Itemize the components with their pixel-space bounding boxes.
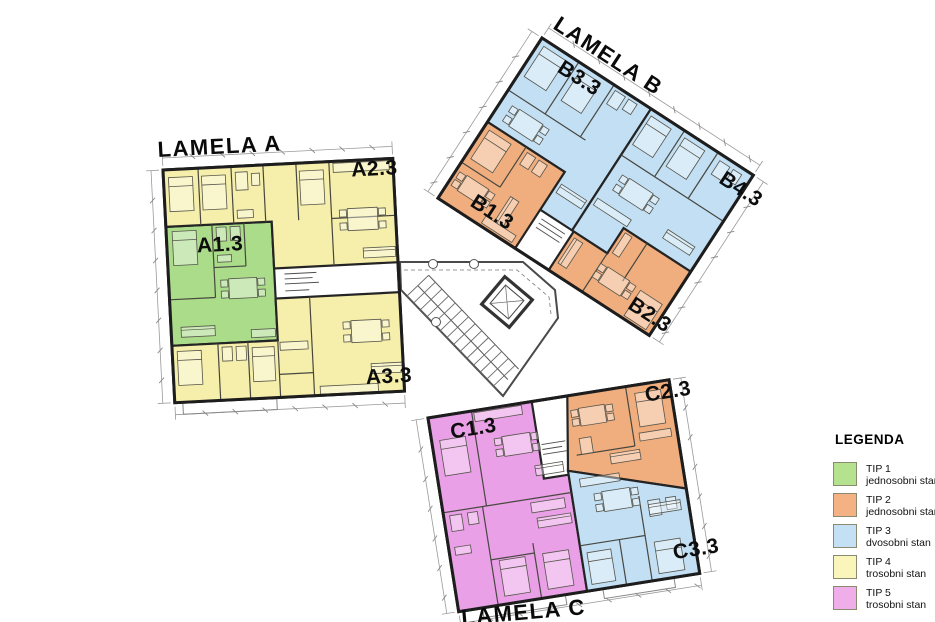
furniture <box>383 333 390 340</box>
unit-label-a2-3: A2.3 <box>351 156 398 181</box>
furniture <box>631 487 639 495</box>
furniture <box>543 550 574 590</box>
unit-label-a3-3: A3.3 <box>365 364 412 389</box>
furniture <box>587 549 616 584</box>
building-lamela-a: A1.3A2.3A3.3 <box>163 156 413 414</box>
furniture <box>602 487 633 511</box>
furniture <box>201 175 227 210</box>
legend-item-tip5: TIP 5 trosobni stan <box>833 586 933 610</box>
core-outline <box>400 262 558 396</box>
furniture <box>280 341 308 350</box>
furniture <box>594 493 602 501</box>
tip5-color-swatch <box>834 587 857 610</box>
legend-item-label: jednosobni stan <box>866 506 935 518</box>
furniture <box>531 432 539 440</box>
furniture <box>596 504 604 512</box>
furniture <box>229 277 258 298</box>
legend: LEGENDA TIP 1 jednosobni stan TIP 2 jedn… <box>833 432 933 617</box>
legend-item-label: trosobni stan <box>866 599 926 611</box>
furniture <box>347 207 378 231</box>
floor-plan-canvas: A1.3A2.3A3.3LAMELA AB3.3B4.3B1.3B2.3LAME… <box>0 0 935 622</box>
furniture <box>532 443 540 451</box>
legend-item-label: jednosobni stan <box>866 475 935 487</box>
furniture <box>340 223 347 230</box>
furniture <box>339 210 346 217</box>
furniture <box>578 404 607 426</box>
unit-label-a1-3: A1.3 <box>196 232 243 257</box>
building-title-lamela-a: LAMELA A <box>157 131 282 162</box>
legend-item-text: TIP 5 trosobni stan <box>866 586 926 611</box>
furniture <box>605 404 613 412</box>
furniture <box>579 437 593 455</box>
furniture <box>222 347 233 362</box>
furniture <box>363 246 396 258</box>
furniture <box>499 557 530 597</box>
unit-label-c2-3: C2.3 <box>643 377 692 407</box>
furniture <box>258 289 265 296</box>
furniture <box>221 280 228 287</box>
legend-swatch-tip5 <box>833 586 857 610</box>
legend-item-code: TIP 3 <box>866 525 931 537</box>
furniture <box>382 320 389 327</box>
furniture <box>502 432 533 456</box>
tip3-color-swatch <box>834 525 857 548</box>
furniture <box>467 512 479 525</box>
legend-item-tip2: TIP 2 jednosobni stan <box>833 493 933 517</box>
legend-item-text: TIP 1 jednosobni stan <box>866 462 935 487</box>
tip2-color-swatch <box>834 494 857 517</box>
tip1-color-swatch <box>834 463 857 486</box>
furniture <box>235 172 248 191</box>
furniture <box>494 438 502 446</box>
furniture <box>177 350 203 385</box>
furniture <box>251 329 275 338</box>
furniture <box>237 210 253 219</box>
furniture <box>351 319 382 343</box>
furniture <box>632 498 640 506</box>
legend-item-label: trosobni stan <box>866 568 926 580</box>
legend-item-tip4: TIP 4 trosobni stan <box>833 555 933 579</box>
furniture <box>172 230 198 265</box>
legend-item-text: TIP 3 dvosobni stan <box>866 524 931 549</box>
legend-swatch-tip3 <box>833 524 857 548</box>
furniture <box>252 347 276 382</box>
legend-item-tip1: TIP 1 jednosobni stan <box>833 462 933 486</box>
floor-plan-page: A1.3A2.3A3.3LAMELA AB3.3B4.3B1.3B2.3LAME… <box>0 0 935 622</box>
furniture <box>258 278 265 285</box>
legend-item-text: TIP 2 jednosobni stan <box>866 493 935 518</box>
legend-item-code: TIP 1 <box>866 463 935 475</box>
furniture <box>221 291 228 298</box>
furniture <box>181 326 215 338</box>
furniture <box>379 221 386 228</box>
legend-swatch-tip2 <box>833 493 857 517</box>
legend-item-code: TIP 4 <box>866 556 926 568</box>
furniture <box>168 177 194 212</box>
central-core <box>400 260 558 397</box>
legend-swatch-tip1 <box>833 462 857 486</box>
building-lamela-c: C1.3C2.3C3.3 <box>428 377 721 618</box>
legend-swatch-tip4 <box>833 555 857 579</box>
legend-item-tip3: TIP 3 dvosobni stan <box>833 524 933 548</box>
furniture <box>572 418 580 426</box>
furniture <box>571 410 579 418</box>
legend-item-label: dvosobni stan <box>866 537 931 549</box>
furniture <box>607 413 615 421</box>
furniture <box>343 322 350 329</box>
column-marker <box>470 260 479 269</box>
legend-title: LEGENDA <box>835 432 933 447</box>
column-marker <box>429 260 438 269</box>
furniture <box>299 170 325 205</box>
tip4-color-swatch <box>834 556 857 579</box>
furniture <box>496 449 504 457</box>
furniture <box>236 346 247 361</box>
furniture <box>251 173 260 185</box>
furniture <box>378 208 385 215</box>
legend-item-text: TIP 4 trosobni stan <box>866 555 926 580</box>
legend-item-code: TIP 2 <box>866 494 935 506</box>
legend-item-code: TIP 5 <box>866 587 926 599</box>
furniture <box>344 335 351 342</box>
column-marker <box>432 318 441 327</box>
furniture <box>450 514 464 532</box>
